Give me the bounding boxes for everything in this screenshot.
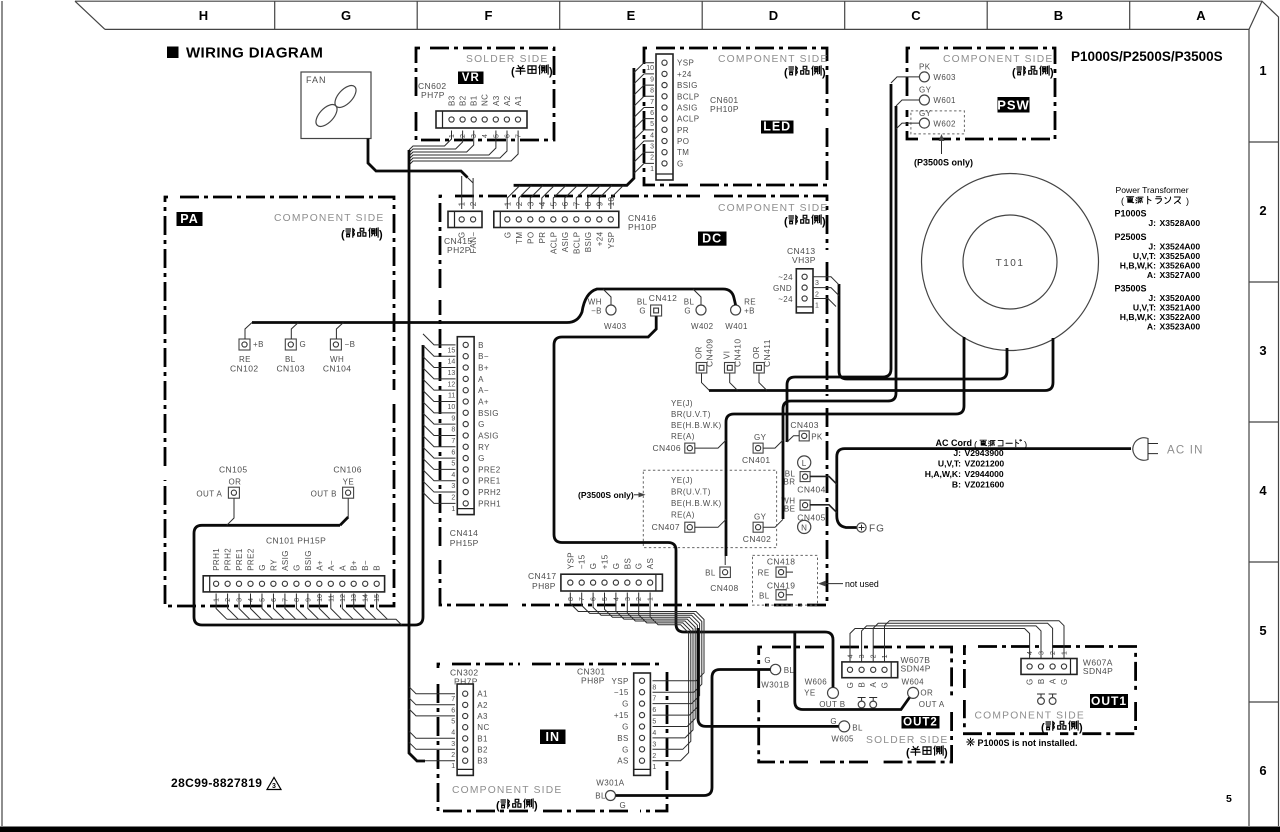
svg-text:BR(U.V.T): BR(U.V.T)	[671, 410, 711, 419]
svg-text:OUT A: OUT A	[196, 490, 222, 499]
svg-text:+B: +B	[744, 307, 755, 316]
svg-text:GY: GY	[919, 86, 932, 95]
svg-text:B: B	[858, 682, 867, 688]
svg-text:W602: W602	[933, 119, 956, 128]
svg-text:4: 4	[652, 730, 656, 737]
svg-text:CN407: CN407	[652, 522, 680, 532]
svg-text:CN401: CN401	[742, 455, 770, 465]
svg-text:BR(U.V.T): BR(U.V.T)	[671, 488, 711, 497]
svg-text:G: G	[612, 563, 621, 570]
svg-text:U,V,T:: U,V,T:	[1133, 303, 1156, 313]
svg-text:A3: A3	[477, 712, 488, 721]
svg-text:A+: A+	[478, 398, 489, 407]
svg-text:G: G	[300, 340, 307, 349]
svg-text:YSP: YSP	[566, 552, 575, 569]
svg-text:U,V,T:: U,V,T:	[1133, 251, 1156, 261]
svg-text:8: 8	[451, 427, 455, 434]
svg-text:): )	[1079, 722, 1083, 734]
svg-text:W605: W605	[831, 735, 854, 744]
svg-text:BSIG: BSIG	[304, 550, 313, 571]
svg-text:3: 3	[859, 654, 866, 658]
svg-text:7: 7	[282, 598, 289, 602]
svg-text:PH15P: PH15P	[450, 538, 479, 548]
svg-text:): )	[944, 747, 948, 759]
svg-text:G: G	[503, 232, 512, 239]
svg-text:1: 1	[449, 134, 456, 138]
svg-text:PR: PR	[677, 126, 689, 135]
svg-text:BL: BL	[684, 298, 695, 307]
svg-text:G: G	[830, 717, 837, 726]
svg-text:TM: TM	[515, 232, 524, 244]
svg-text:PRE1: PRE1	[478, 477, 501, 486]
svg-text:5: 5	[451, 719, 455, 726]
svg-text:4: 4	[451, 472, 455, 479]
svg-text:3: 3	[451, 483, 455, 490]
svg-text:COMPONENT SIDE: COMPONENT SIDE	[943, 54, 1053, 65]
svg-text:+24: +24	[677, 70, 692, 79]
svg-text:1: 1	[451, 506, 455, 513]
svg-text:): )	[822, 67, 826, 79]
svg-text:G: G	[622, 700, 629, 709]
svg-text:B: B	[1037, 678, 1046, 684]
svg-text:B2: B2	[477, 746, 488, 755]
svg-text:OR: OR	[694, 346, 703, 359]
svg-text:+15: +15	[601, 554, 610, 569]
svg-text:CN106: CN106	[333, 465, 361, 475]
svg-text:FG: FG	[869, 524, 885, 535]
svg-text:): )	[1024, 440, 1027, 451]
svg-text:CN406: CN406	[653, 443, 681, 453]
svg-text:J:: J:	[1148, 242, 1156, 252]
svg-text:PK: PK	[811, 433, 823, 442]
svg-text:1: 1	[214, 598, 221, 602]
svg-text:11: 11	[448, 393, 455, 400]
svg-text:ASIG: ASIG	[281, 550, 290, 571]
svg-text:28C99-8827819: 28C99-8827819	[171, 776, 262, 790]
svg-text:YE: YE	[343, 478, 354, 487]
svg-text:10: 10	[448, 404, 456, 411]
svg-text:A:: A:	[1147, 322, 1156, 332]
svg-text:13: 13	[351, 594, 358, 602]
svg-text:4: 4	[451, 730, 455, 737]
svg-text:X3521A00: X3521A00	[1160, 303, 1201, 313]
svg-text:YSP: YSP	[677, 59, 694, 68]
svg-text:2: 2	[451, 752, 455, 759]
svg-text:OR: OR	[229, 478, 242, 487]
svg-text:G: G	[677, 159, 684, 168]
svg-text:ACLP: ACLP	[677, 115, 700, 124]
svg-text:12: 12	[340, 594, 347, 602]
svg-text:(: (	[496, 800, 500, 812]
svg-text:W606: W606	[805, 678, 828, 687]
svg-text:13: 13	[448, 370, 456, 377]
svg-text:(: (	[511, 66, 515, 78]
svg-text:): )	[822, 216, 826, 228]
svg-text:Power Transformer: Power Transformer	[1116, 185, 1189, 195]
svg-text:6: 6	[271, 598, 278, 602]
svg-text:14: 14	[448, 359, 456, 366]
svg-text:PH2P: PH2P	[447, 245, 471, 255]
svg-text:FAN: FAN	[306, 75, 327, 85]
svg-text:3: 3	[451, 741, 455, 748]
svg-text:W301A: W301A	[596, 779, 624, 788]
svg-text:OUT1: OUT1	[1091, 694, 1127, 708]
svg-text:BE(H.B.W.K): BE(H.B.W.K)	[671, 421, 722, 430]
svg-text:1: 1	[1259, 63, 1266, 78]
svg-text:9: 9	[451, 415, 455, 422]
svg-text:B3: B3	[448, 95, 457, 106]
svg-text:B:: B:	[952, 480, 961, 490]
svg-text:PRH2: PRH2	[224, 548, 233, 571]
svg-text:B+: B+	[478, 364, 489, 373]
svg-text:G: G	[341, 8, 351, 23]
svg-text:PRE1: PRE1	[235, 548, 244, 571]
svg-text:AS: AS	[646, 558, 655, 569]
svg-text:BSIG: BSIG	[478, 409, 499, 418]
svg-text:5: 5	[602, 597, 609, 601]
svg-text:A: A	[478, 375, 484, 384]
svg-text:): )	[1050, 67, 1054, 79]
svg-text:NC: NC	[481, 94, 490, 106]
svg-text:X3524A00: X3524A00	[1160, 242, 1201, 252]
svg-text:5: 5	[1259, 623, 1266, 638]
svg-text:W601: W601	[933, 96, 956, 105]
svg-text:G: G	[292, 564, 301, 571]
svg-text:BS: BS	[617, 734, 628, 743]
svg-text:G: G	[589, 563, 598, 570]
svg-text:X3520A00: X3520A00	[1160, 293, 1201, 303]
svg-text:CN105: CN105	[219, 465, 247, 475]
svg-text:5: 5	[259, 598, 266, 602]
svg-text:X3525A00: X3525A00	[1160, 251, 1201, 261]
svg-text:BR: BR	[783, 478, 795, 487]
svg-text:10: 10	[317, 594, 324, 602]
svg-text:U,V,T:: U,V,T:	[938, 459, 961, 469]
svg-text:G: G	[1060, 678, 1069, 685]
svg-text:CN403: CN403	[790, 420, 818, 430]
svg-text:AC Cord: AC Cord	[936, 438, 973, 448]
svg-text:1: 1	[648, 597, 655, 601]
svg-text:SOLDER SIDE: SOLDER SIDE	[466, 54, 548, 65]
svg-text:7: 7	[515, 134, 522, 138]
svg-text:CN404: CN404	[797, 485, 825, 495]
svg-text:5: 5	[451, 461, 455, 468]
svg-text:GY: GY	[919, 109, 932, 118]
svg-text:6: 6	[504, 134, 511, 138]
svg-text:4: 4	[482, 134, 489, 138]
svg-text:RE(A): RE(A)	[671, 511, 695, 520]
svg-text:CN102: CN102	[230, 364, 258, 374]
svg-text:BL: BL	[759, 591, 770, 600]
svg-text:ASIG: ASIG	[561, 232, 570, 253]
svg-text:+15: +15	[614, 711, 629, 720]
svg-text:E: E	[627, 8, 636, 23]
svg-text:P1000S is not installed.: P1000S is not installed.	[978, 738, 1078, 748]
svg-text:−B: −B	[591, 307, 602, 316]
svg-text:COMPONENT SIDE: COMPONENT SIDE	[975, 711, 1085, 722]
svg-text:1: 1	[652, 764, 656, 771]
svg-text:B3: B3	[477, 757, 488, 766]
svg-text:C: C	[911, 8, 921, 23]
svg-text:6: 6	[451, 449, 455, 456]
svg-text:CN103: CN103	[277, 364, 305, 374]
svg-text:6: 6	[650, 110, 654, 117]
svg-text:A2: A2	[503, 95, 512, 106]
svg-text:15: 15	[374, 594, 381, 602]
svg-text:OUT B: OUT B	[311, 490, 337, 499]
svg-text:7: 7	[650, 99, 654, 106]
svg-text:~24: ~24	[778, 273, 793, 282]
svg-text:14: 14	[363, 594, 370, 602]
svg-text:BSIG: BSIG	[584, 232, 593, 253]
svg-text:3: 3	[650, 144, 654, 151]
svg-text:A: A	[869, 681, 878, 687]
svg-text:8: 8	[294, 598, 301, 602]
svg-text:SDN4P: SDN4P	[1083, 666, 1113, 676]
svg-text:A: A	[1049, 678, 1058, 684]
svg-text:4: 4	[1027, 651, 1034, 655]
svg-text:B1: B1	[470, 95, 479, 106]
svg-text:VZ021200: VZ021200	[965, 459, 1005, 469]
svg-text:PH7P: PH7P	[421, 90, 445, 100]
svg-text:5: 5	[1226, 793, 1232, 805]
svg-text:4: 4	[1259, 483, 1267, 498]
svg-text:H: H	[199, 8, 208, 23]
svg-text:G: G	[1026, 678, 1035, 685]
svg-text:YSP: YSP	[607, 232, 616, 249]
svg-text:ASIG: ASIG	[677, 103, 698, 112]
svg-text:2: 2	[650, 155, 654, 162]
svg-text:COMPONENT SIDE: COMPONENT SIDE	[274, 213, 384, 224]
svg-text:PRH1: PRH1	[478, 499, 501, 508]
svg-text:+B: +B	[253, 340, 264, 349]
svg-text:PH10P: PH10P	[628, 222, 657, 232]
svg-text:3: 3	[471, 134, 478, 138]
svg-text:COMPONENT SIDE: COMPONENT SIDE	[452, 785, 562, 796]
svg-text:1: 1	[451, 763, 455, 770]
svg-text:−B: −B	[345, 340, 356, 349]
svg-text:BL: BL	[595, 792, 606, 801]
svg-text:6: 6	[652, 707, 656, 714]
svg-text:X3522A00: X3522A00	[1160, 312, 1201, 322]
svg-text:GND: GND	[773, 284, 792, 293]
svg-text:RY: RY	[269, 559, 278, 571]
svg-text:A+: A+	[315, 560, 324, 571]
svg-text:6: 6	[1259, 763, 1266, 778]
svg-text:OUT B: OUT B	[819, 700, 845, 709]
svg-text:11: 11	[328, 595, 335, 602]
svg-text:PRE2: PRE2	[478, 465, 501, 474]
svg-text:VR: VR	[462, 72, 480, 84]
svg-text:YE: YE	[804, 689, 815, 698]
svg-text:LED: LED	[763, 120, 791, 134]
svg-text:4: 4	[848, 654, 855, 658]
svg-text:W401: W401	[725, 322, 748, 331]
svg-text:15: 15	[448, 347, 456, 354]
svg-text:1: 1	[815, 303, 819, 310]
svg-text:G: G	[458, 232, 467, 239]
svg-text:B+: B+	[350, 560, 359, 571]
svg-text:BL: BL	[852, 724, 863, 733]
svg-text:W402: W402	[691, 322, 714, 331]
svg-text:B2: B2	[459, 95, 468, 106]
svg-text:G: G	[684, 307, 691, 316]
svg-text:(P3500S only): (P3500S only)	[914, 158, 973, 168]
svg-text:2: 2	[1050, 651, 1057, 655]
svg-text:): )	[379, 229, 383, 241]
svg-text:7: 7	[652, 696, 656, 703]
svg-text:RY: RY	[478, 443, 490, 452]
svg-text:3: 3	[272, 783, 276, 790]
svg-text:GY: GY	[754, 433, 767, 442]
svg-text:(: (	[1121, 196, 1124, 206]
svg-text:CN419: CN419	[767, 580, 795, 590]
svg-text:V2943900: V2943900	[965, 448, 1004, 458]
svg-text:W403: W403	[604, 322, 627, 331]
svg-text:CN402: CN402	[743, 534, 771, 544]
svg-text:P1000S/P2500S/P3500S: P1000S/P2500S/P3500S	[1071, 49, 1223, 64]
svg-text:BL: BL	[784, 666, 795, 675]
svg-text:3: 3	[1039, 651, 1046, 655]
svg-text:J:: J:	[1148, 293, 1156, 303]
svg-text:2: 2	[451, 495, 455, 502]
svg-text:PRE2: PRE2	[247, 548, 256, 571]
svg-text:G: G	[635, 563, 644, 570]
svg-text:F: F	[485, 8, 493, 23]
svg-text:A3: A3	[492, 95, 501, 106]
svg-text:BS: BS	[623, 558, 632, 569]
svg-text:B: B	[478, 341, 484, 350]
svg-text:WH: WH	[588, 298, 602, 307]
svg-text:4: 4	[613, 597, 620, 601]
svg-text:FAN−: FAN−	[469, 232, 478, 254]
svg-text:H,B,W,K:: H,B,W,K:	[1120, 261, 1156, 271]
svg-text:6: 6	[591, 597, 598, 601]
svg-text:(: (	[784, 67, 788, 79]
svg-text:X3528A00: X3528A00	[1160, 218, 1201, 228]
svg-text:OUT2: OUT2	[903, 717, 938, 729]
svg-text:G: G	[881, 682, 890, 689]
svg-text:AS: AS	[617, 757, 628, 766]
svg-text:D: D	[769, 8, 778, 23]
svg-text:PK: PK	[919, 63, 931, 72]
svg-text:X3523A00: X3523A00	[1160, 322, 1201, 332]
svg-text:4: 4	[248, 598, 255, 602]
svg-text:TM: TM	[677, 148, 689, 157]
svg-text:AC IN: AC IN	[1167, 445, 1204, 457]
svg-text:2: 2	[652, 753, 656, 760]
svg-text:2: 2	[1259, 203, 1266, 218]
svg-text:A:: A:	[1147, 270, 1156, 280]
svg-text:5: 5	[650, 121, 654, 128]
svg-text:B: B	[1054, 8, 1063, 23]
svg-text:L: L	[802, 459, 807, 468]
svg-text:5: 5	[493, 134, 500, 138]
svg-text:G: G	[620, 801, 627, 810]
svg-text:X3527A00: X3527A00	[1160, 270, 1201, 280]
svg-text:VI: VI	[723, 351, 732, 359]
svg-text:YE(J): YE(J)	[671, 476, 693, 485]
svg-text:+24: +24	[595, 231, 604, 246]
svg-text:G: G	[639, 307, 646, 316]
svg-text:P1000S: P1000S	[1115, 209, 1147, 219]
svg-text:9: 9	[650, 76, 654, 83]
svg-text:7: 7	[451, 438, 455, 445]
svg-text:8: 8	[568, 597, 575, 601]
svg-text:(: (	[784, 216, 788, 228]
svg-text:A−: A−	[327, 560, 336, 571]
svg-text:1: 1	[650, 166, 654, 173]
svg-text:T101: T101	[996, 258, 1025, 269]
svg-text:(: (	[1041, 722, 1045, 734]
svg-text:): )	[549, 66, 553, 78]
svg-text:COMPONENT SIDE: COMPONENT SIDE	[718, 203, 828, 214]
svg-text:J:: J:	[1148, 218, 1156, 228]
svg-text:RE(A): RE(A)	[671, 432, 695, 441]
svg-text:CN411: CN411	[762, 339, 772, 367]
svg-text:5: 5	[652, 719, 656, 726]
svg-text:BL: BL	[637, 298, 648, 307]
svg-text:OUT A: OUT A	[919, 700, 945, 709]
svg-text:DC: DC	[702, 232, 722, 246]
svg-text:ASIG: ASIG	[478, 431, 499, 440]
svg-text:A1: A1	[477, 690, 488, 699]
svg-text:B−: B−	[478, 352, 489, 361]
svg-text:G: G	[622, 745, 629, 754]
svg-text:RE: RE	[758, 569, 770, 578]
svg-text:CN417: CN417	[528, 571, 556, 581]
svg-text:G: G	[258, 564, 267, 571]
svg-text:SOLDER SIDE: SOLDER SIDE	[866, 735, 948, 746]
svg-text:H,A,W,K:: H,A,W,K:	[925, 469, 961, 479]
svg-text:VH3P: VH3P	[792, 255, 816, 265]
svg-text:3: 3	[815, 280, 819, 287]
svg-text:SDN4P: SDN4P	[901, 664, 931, 674]
svg-text:CN412: CN412	[649, 293, 677, 303]
svg-text:A−: A−	[478, 386, 489, 395]
svg-text:B1: B1	[477, 734, 488, 743]
svg-text:W301B: W301B	[761, 681, 789, 690]
svg-text:B−: B−	[361, 560, 370, 571]
svg-text:CN409: CN409	[704, 339, 714, 367]
svg-text:YE(J): YE(J)	[671, 399, 693, 408]
svg-text:PH8P: PH8P	[581, 676, 605, 686]
svg-text:CN101 PH15P: CN101 PH15P	[266, 536, 326, 546]
svg-text:G: G	[846, 682, 855, 689]
svg-text:RE: RE	[744, 298, 756, 307]
svg-text:P3500S: P3500S	[1115, 284, 1147, 294]
svg-text:10: 10	[646, 65, 654, 72]
svg-text:B: B	[373, 565, 382, 571]
svg-text:W604: W604	[902, 678, 925, 687]
svg-text:1: 1	[882, 654, 889, 658]
svg-text:N: N	[801, 524, 807, 533]
svg-text:COMPONENT SIDE: COMPONENT SIDE	[718, 54, 828, 65]
svg-text:(: (	[906, 747, 910, 759]
svg-text:BE(H.B.W.K): BE(H.B.W.K)	[671, 499, 722, 508]
svg-text:−15: −15	[578, 554, 587, 569]
svg-text:PO: PO	[677, 137, 689, 146]
svg-text:G: G	[478, 454, 485, 463]
svg-text:(: (	[1012, 67, 1016, 79]
svg-text:YSP: YSP	[611, 677, 628, 686]
svg-text:PH10P: PH10P	[710, 104, 739, 114]
svg-text:A: A	[1196, 8, 1206, 23]
svg-text:(: (	[341, 229, 345, 241]
svg-text:not used: not used	[845, 579, 879, 589]
svg-text:7: 7	[451, 696, 455, 703]
svg-text:CN408: CN408	[710, 583, 738, 593]
